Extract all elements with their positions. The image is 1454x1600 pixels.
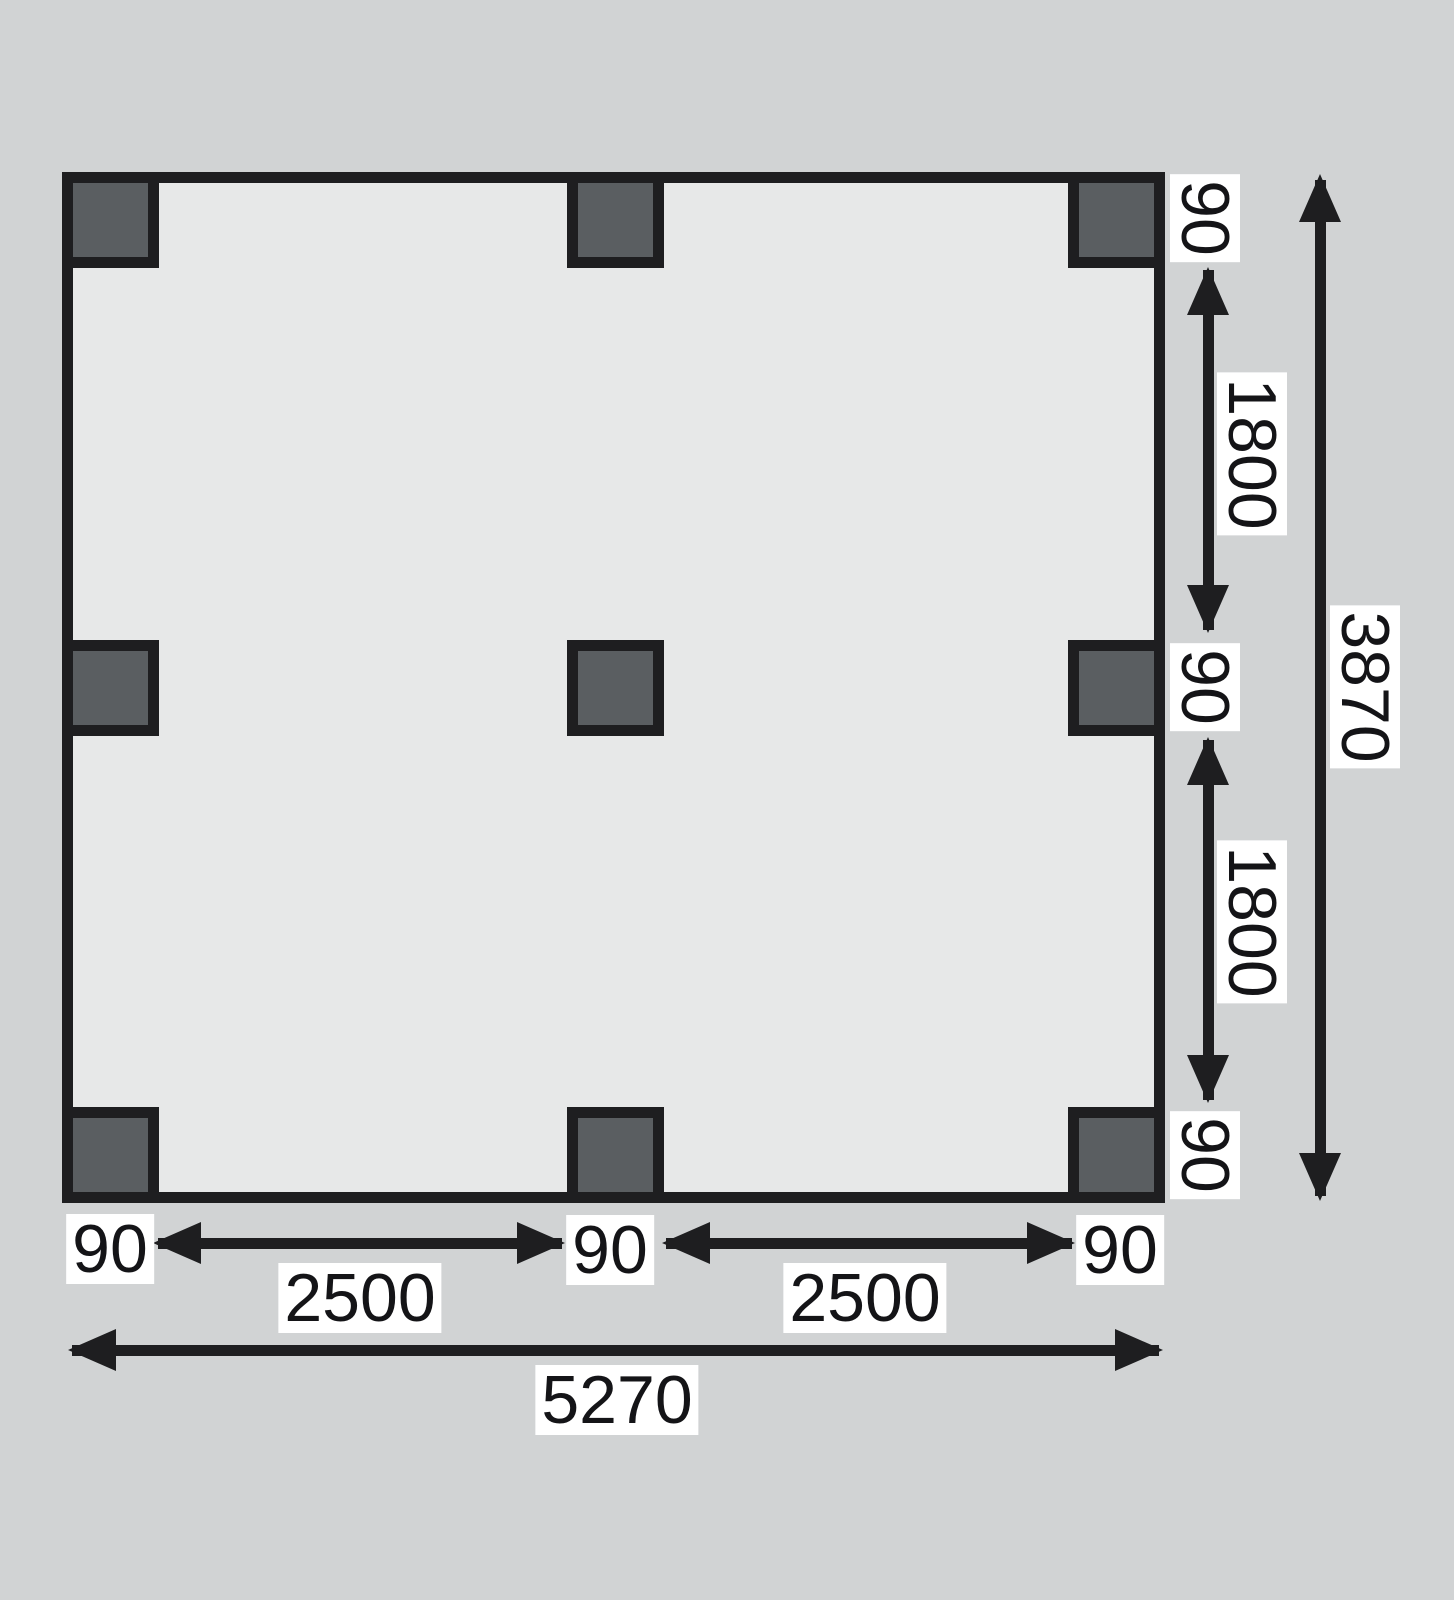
- arrowhead-right-icon: [517, 1222, 565, 1264]
- dim-label-3870-total: 3870: [1330, 605, 1400, 768]
- post-top-right: [1068, 172, 1165, 268]
- dim-line-bottom-seg2: [666, 1238, 1072, 1249]
- arrowhead-up-icon: [1187, 267, 1229, 315]
- dim-line-bottom-seg1: [158, 1238, 562, 1249]
- dim-line-right-seg2: [1203, 740, 1214, 1100]
- arrowhead-down-icon: [1299, 1153, 1341, 1201]
- post-top-center: [567, 172, 664, 268]
- post-top-left: [62, 172, 159, 268]
- dim-label-5270-total: 5270: [535, 1365, 698, 1435]
- post-middle-right: [1068, 640, 1165, 736]
- arrowhead-left-icon: [153, 1222, 201, 1264]
- dim-label-90-bottom-left: 90: [66, 1214, 154, 1284]
- dim-line-right-seg1: [1203, 270, 1214, 630]
- dim-label-90-right-top: 90: [1170, 174, 1240, 262]
- dim-line-right-total: [1315, 180, 1326, 1196]
- arrowhead-right-icon: [1027, 1222, 1075, 1264]
- post-bottom-center: [567, 1107, 664, 1203]
- arrowhead-down-icon: [1187, 585, 1229, 633]
- dim-label-90-bottom-center: 90: [566, 1215, 654, 1285]
- arrowhead-up-icon: [1299, 174, 1341, 222]
- dim-label-1800-first: 1800: [1217, 372, 1287, 535]
- arrowhead-up-icon: [1187, 737, 1229, 785]
- post-center: [567, 640, 664, 736]
- dim-label-90-bottom-right: 90: [1076, 1215, 1164, 1285]
- dim-label-2500-first: 2500: [278, 1263, 441, 1333]
- dim-label-90-right-bottom: 90: [1170, 1111, 1240, 1199]
- arrowhead-left-icon: [662, 1222, 710, 1264]
- post-bottom-left: [62, 1107, 159, 1203]
- dim-label-1800-second: 1800: [1217, 840, 1287, 1003]
- dim-label-2500-second: 2500: [783, 1263, 946, 1333]
- arrowhead-right-icon: [1115, 1329, 1163, 1371]
- floor-plan-canvas: 90 2500 90 2500 90 5270 90 1800 90 1800 …: [0, 0, 1454, 1600]
- post-middle-left: [62, 640, 159, 736]
- arrowhead-left-icon: [68, 1329, 116, 1371]
- dim-line-bottom-total: [72, 1345, 1159, 1356]
- dim-label-90-right-middle: 90: [1170, 643, 1240, 731]
- arrowhead-down-icon: [1187, 1055, 1229, 1103]
- post-bottom-right: [1068, 1107, 1165, 1203]
